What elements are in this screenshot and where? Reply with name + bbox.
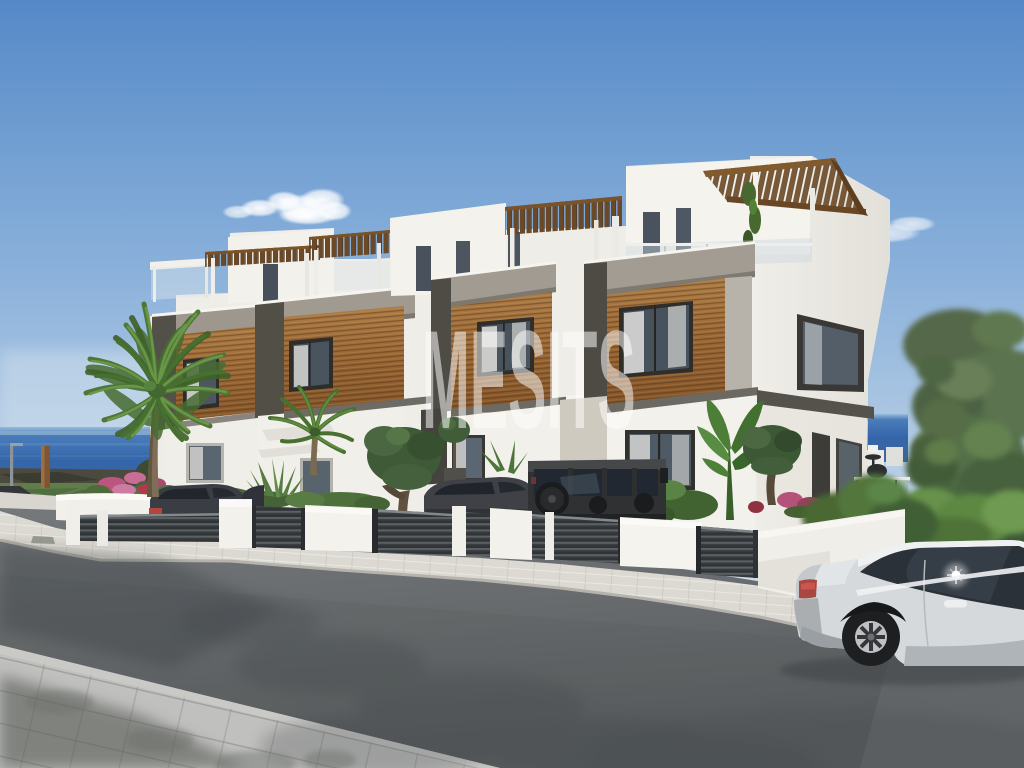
- svg-text:MESITS: MESITS: [422, 301, 636, 458]
